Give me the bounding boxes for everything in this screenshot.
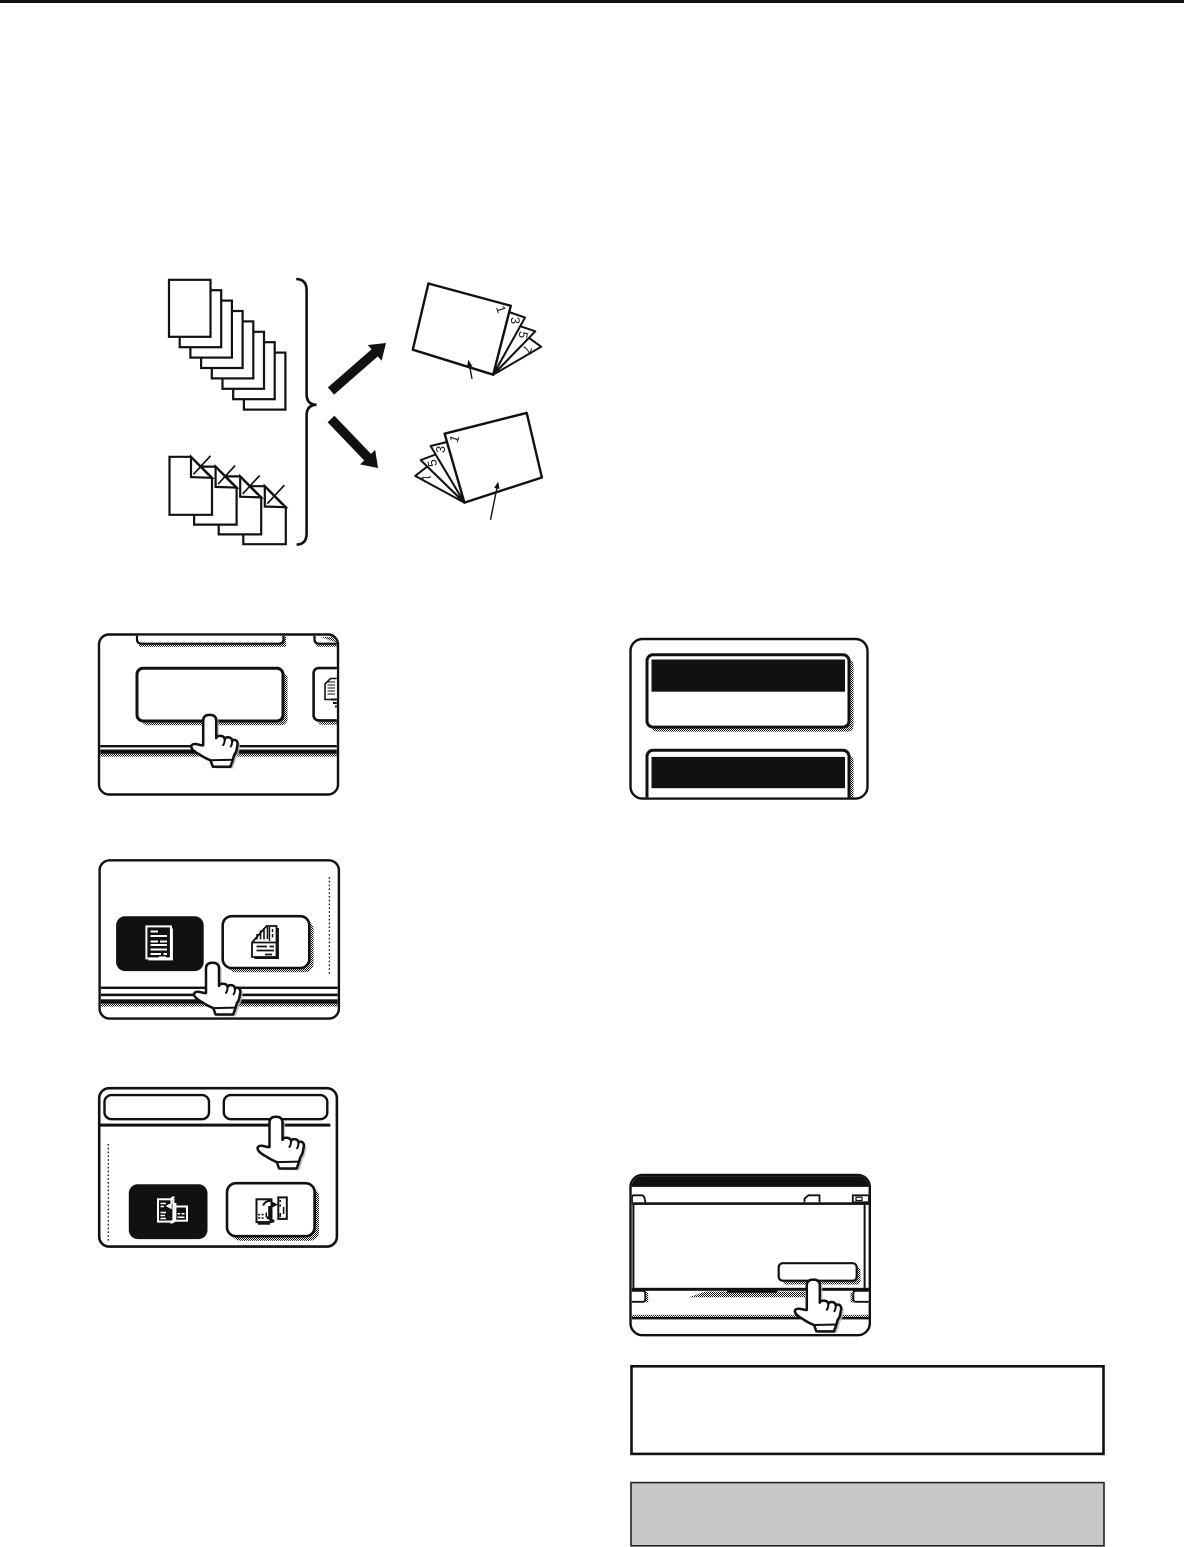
- svg-text:3: 3: [508, 317, 522, 325]
- svg-text:3: 3: [434, 446, 448, 454]
